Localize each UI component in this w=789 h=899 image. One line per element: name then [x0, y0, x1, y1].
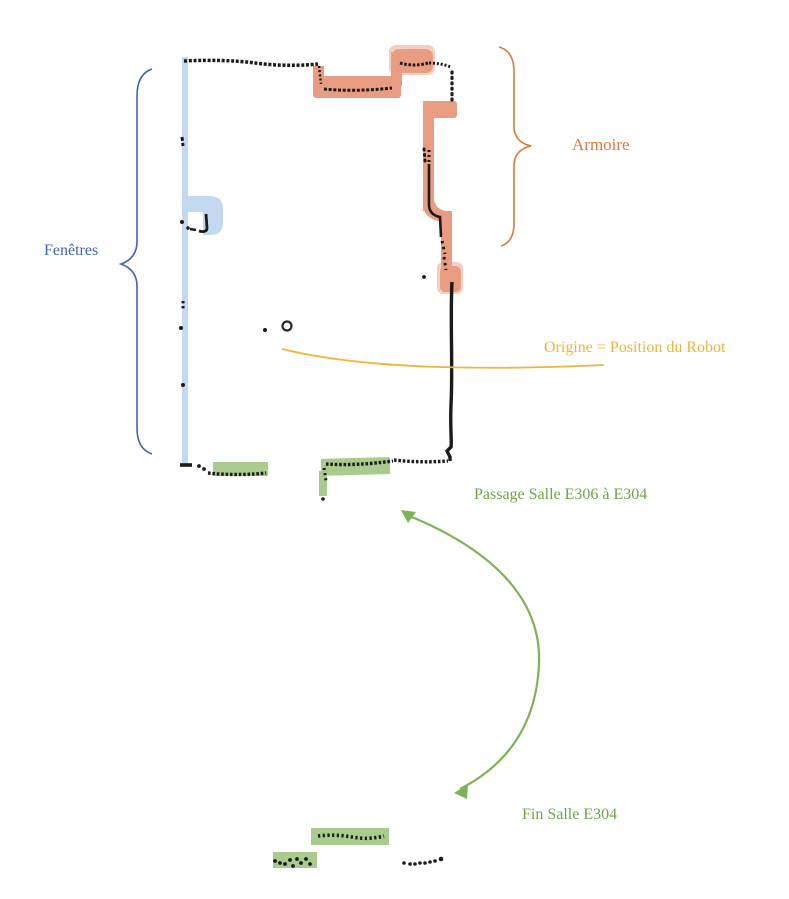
origin-label: Origine = Position du Robot — [544, 339, 725, 357]
robot-origin-marker — [283, 322, 292, 331]
fin-salle-label: Fin Salle E304 — [522, 806, 617, 824]
scan-map-canvas — [0, 0, 789, 899]
passage-label: Passage Salle E306 à E304 — [474, 486, 647, 504]
passage-highlight-region — [213, 457, 390, 868]
passage-curved-arrow — [401, 510, 539, 799]
annotated-robot-map: Fenêtres Armoire Origine = Position du R… — [0, 0, 789, 899]
armoire-label: Armoire — [572, 136, 630, 155]
armoire-brace — [499, 47, 531, 246]
wall-scan-points — [180, 60, 452, 838]
wall-scan-dots — [179, 220, 443, 868]
cabinet-highlight-region — [313, 45, 463, 294]
windows-highlight-region — [182, 57, 223, 466]
fenetres-label: Fenêtres — [44, 242, 98, 260]
fenetres-brace — [121, 69, 152, 454]
